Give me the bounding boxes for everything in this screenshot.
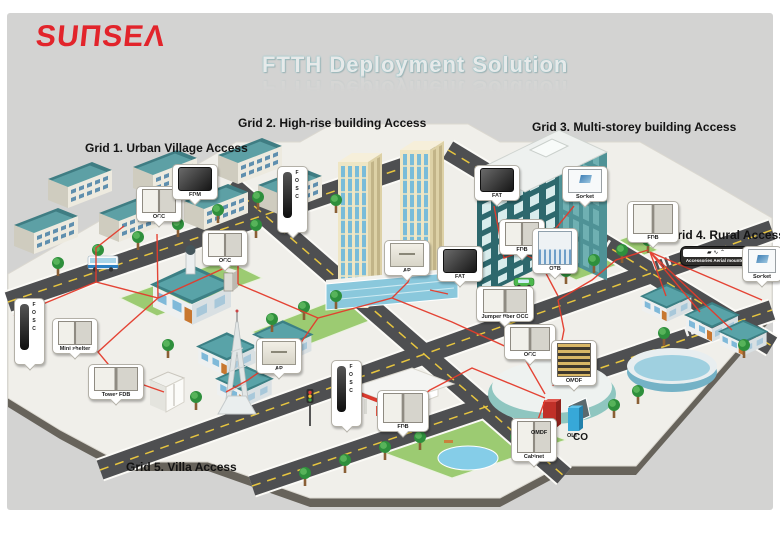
callout-fdm: FDM — [172, 164, 218, 200]
grid4-label: Grid 4. Rural Access — [668, 228, 780, 242]
street-cabinet-3d — [224, 268, 238, 291]
callout-fdb-villa: FDB — [377, 390, 429, 432]
ap-box-icon — [390, 243, 424, 267]
callout-label: FDM — [175, 192, 215, 198]
fat-terminal-icon — [443, 249, 477, 273]
callout-label: Accessories Aerial mounted — [683, 258, 749, 263]
callout-label: FAT — [440, 274, 480, 280]
mini-shelter-icon — [58, 321, 92, 345]
otb-terminal-icon — [538, 231, 572, 265]
fosc-closure-icon — [20, 304, 29, 350]
callout-jumper-fiber-occ: Jumper fiber OCC — [476, 286, 534, 322]
olt-cabinet-3d — [568, 406, 583, 432]
sunsea-logo: SUΠSEΛ — [34, 22, 167, 52]
callout-label: FAT — [477, 193, 517, 199]
fat-terminal-icon — [480, 168, 514, 192]
callout-label: FOSC — [294, 170, 299, 202]
grid3-label: Grid 3. Multi-storey building Access — [532, 120, 736, 134]
ap-box-icon — [262, 341, 296, 365]
fdb-cabinet-icon — [633, 204, 673, 234]
callout-label: AP — [387, 268, 427, 274]
callout-label: Mini shelter — [55, 346, 95, 352]
grid2-label: Grid 2. High-rise building Access — [238, 116, 426, 130]
callout-socket-multistorey: Socket — [562, 166, 608, 202]
occ-cabinet-icon — [142, 189, 176, 213]
callout-label: Socket — [745, 274, 779, 280]
omdf-ground-label: OMDF — [531, 430, 547, 436]
socket-icon — [568, 169, 602, 193]
callout-fosc-left: FOSC — [14, 298, 45, 365]
page-title-reflection: FTTH Deployment Solution — [262, 75, 568, 101]
callout-occ-crossing: OCC — [202, 230, 248, 266]
fdb-cabinet-icon — [383, 393, 423, 423]
fosc-closure-icon — [283, 172, 292, 218]
callout-mini-shelter: Mini shelter — [52, 318, 98, 354]
callout-otb: OTB — [532, 228, 578, 274]
callout-occ-center: OCC — [504, 324, 556, 360]
socket-icon — [748, 249, 776, 273]
callout-label: OTB — [535, 266, 575, 272]
callout-ap-highrise: AP — [384, 240, 430, 276]
grid5-label: Grid 5. Villa Access — [126, 460, 237, 474]
co-site-label: CO — [573, 432, 588, 443]
callout-label: OCC — [205, 258, 245, 264]
callout-omdf: OMDF — [551, 340, 597, 386]
callout-label: Jumper fiber OCC — [479, 314, 531, 320]
callout-ap-villa: AP — [256, 338, 302, 374]
callout-tower-fdb: Tower FDB — [88, 364, 144, 400]
occ-cabinet-icon — [510, 327, 550, 351]
callout-label: OCC — [139, 214, 179, 220]
ftth-deployment-poster: SUΠSEΛ FTTH Deployment Solution FTTH Dep… — [0, 0, 780, 534]
callout-label: FOSC — [31, 302, 36, 334]
fdm-box-icon — [178, 167, 212, 191]
callout-fosc-urban: FOSC — [277, 166, 308, 233]
callout-fosc-villa: FOSC — [331, 360, 362, 427]
callout-fat-multistorey: FAT — [474, 165, 520, 201]
callout-label: Cabinet — [514, 454, 554, 460]
callout-label: Socket — [565, 194, 605, 200]
callout-fat-highrise: FAT — [437, 246, 483, 282]
fosc-closure-icon — [337, 366, 346, 412]
callout-label: OMDF — [554, 378, 594, 384]
callout-label: FDB — [380, 424, 426, 430]
callout-label: FOSC — [348, 364, 353, 396]
aerial-accessory-icons: ▰ ∿ ⌃ — [683, 249, 749, 257]
jumper-occ-cabinet-icon — [483, 289, 527, 313]
tower-fdb-icon — [94, 367, 138, 391]
grid1-label: Grid 1. Urban Village Access — [85, 141, 248, 155]
callout-socket-rural: Socket — [742, 246, 780, 282]
cabinet-icon — [517, 421, 551, 453]
callout-fdb-rural: FDB — [627, 201, 679, 243]
callout-cabinet: Cabinet — [511, 418, 557, 462]
callout-label: Tower FDB — [91, 392, 141, 398]
callout-label: OCC — [507, 352, 553, 358]
occ-cabinet-icon — [208, 233, 242, 257]
callout-label: AP — [259, 366, 299, 372]
callout-label: FDB — [630, 235, 676, 241]
round-building — [627, 348, 717, 392]
omdf-rack-icon — [557, 343, 591, 377]
